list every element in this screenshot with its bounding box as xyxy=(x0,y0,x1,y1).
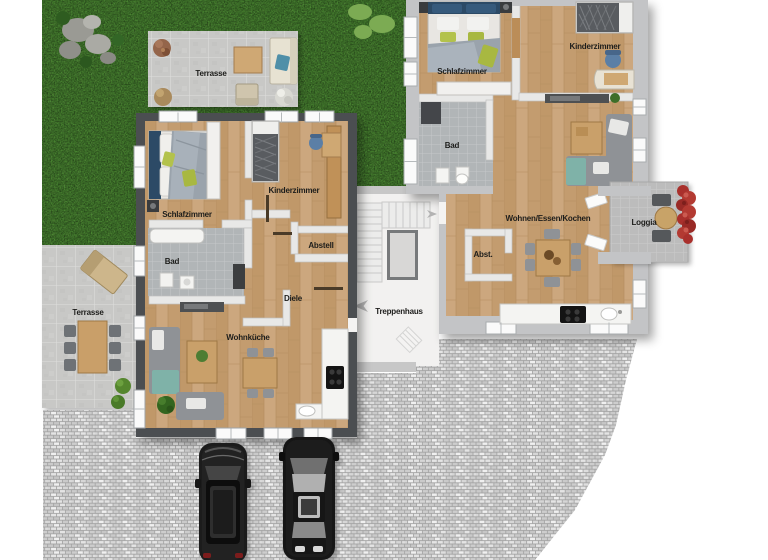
svg-text:Terrasse: Terrasse xyxy=(195,69,227,78)
svg-text:Schlafzimmer: Schlafzimmer xyxy=(162,210,212,219)
svg-text:Kinderzimmer: Kinderzimmer xyxy=(570,42,621,51)
svg-text:Bad: Bad xyxy=(165,257,180,266)
svg-text:Wohnen/Essen/Kochen: Wohnen/Essen/Kochen xyxy=(506,214,591,223)
svg-text:Diele: Diele xyxy=(284,294,303,303)
svg-text:Terrasse: Terrasse xyxy=(72,308,104,317)
svg-text:Abst.: Abst. xyxy=(473,250,492,259)
svg-text:Abstell: Abstell xyxy=(308,241,333,250)
svg-text:Schlafzimmer: Schlafzimmer xyxy=(437,67,487,76)
svg-text:Bad: Bad xyxy=(445,141,460,150)
svg-text:Kinderzimmer: Kinderzimmer xyxy=(269,186,320,195)
svg-text:Wohnküche: Wohnküche xyxy=(226,333,270,342)
svg-text:Treppenhaus: Treppenhaus xyxy=(375,307,423,316)
svg-text:Loggia: Loggia xyxy=(631,218,657,227)
